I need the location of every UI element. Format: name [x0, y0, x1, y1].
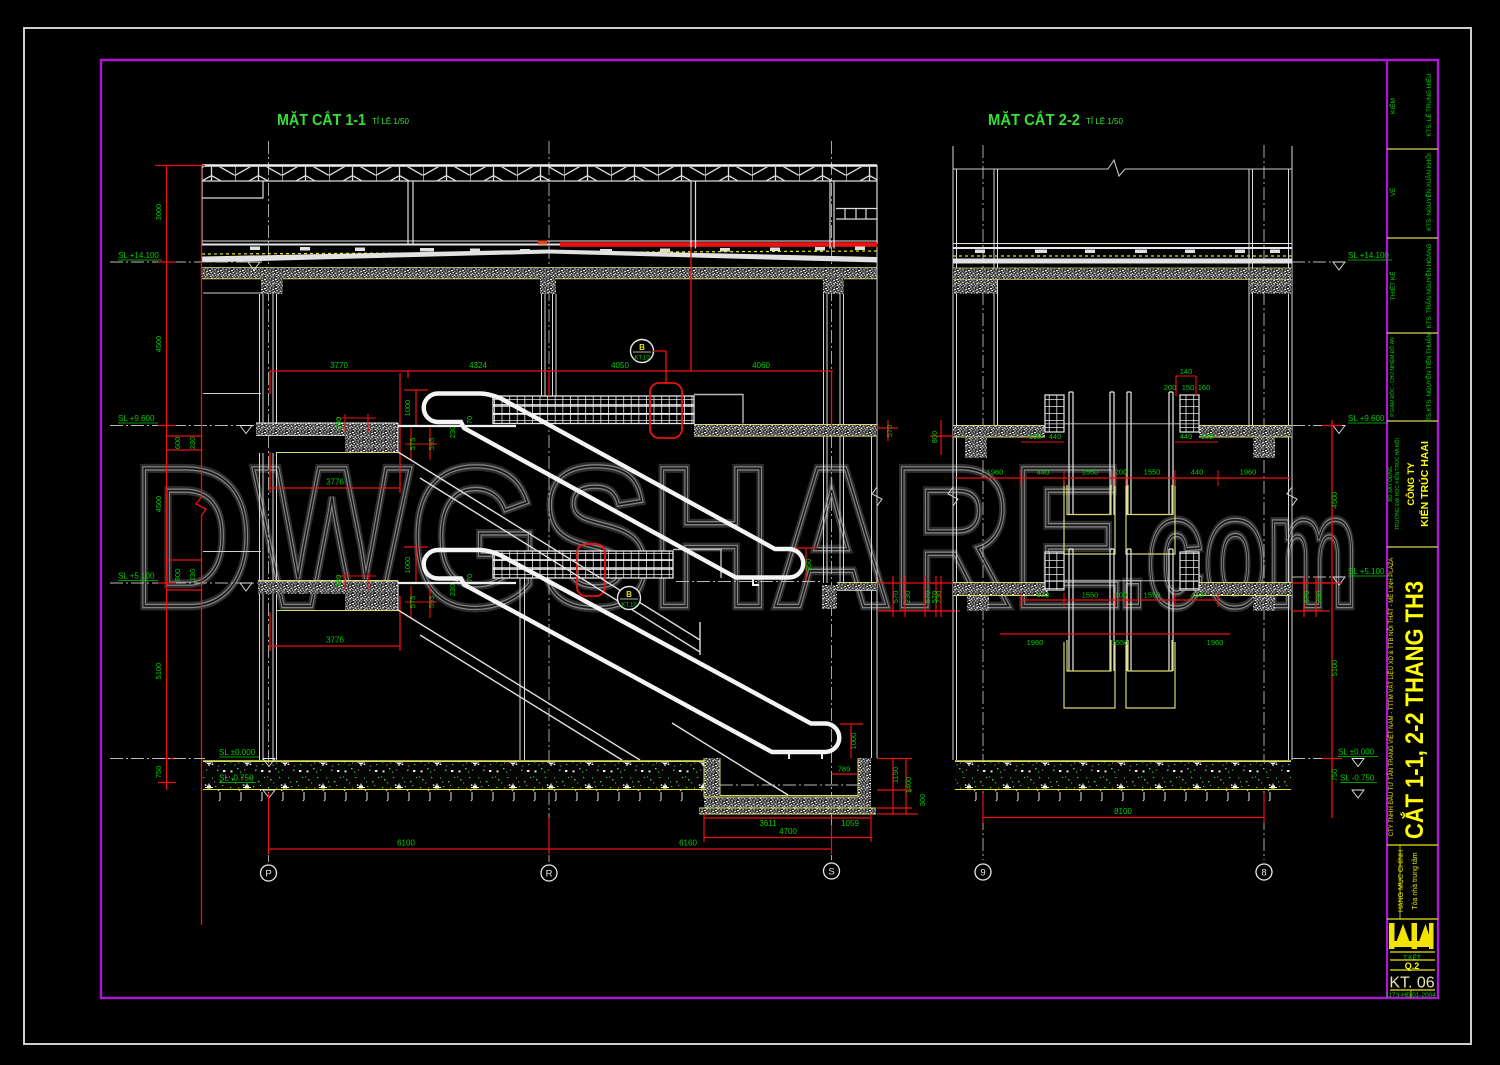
svg-text:3611: 3611 — [759, 819, 777, 828]
svg-text:.com: .com — [1118, 461, 1358, 640]
svg-text:4500: 4500 — [1330, 492, 1339, 509]
svg-text:1150: 1150 — [891, 767, 900, 783]
svg-text:1000: 1000 — [403, 557, 412, 574]
svg-text:440: 440 — [1049, 432, 1062, 441]
svg-text:5100: 5100 — [1330, 660, 1339, 677]
svg-text:1400: 1400 — [904, 777, 913, 794]
svg-text:230: 230 — [448, 426, 457, 439]
svg-text:570: 570 — [1302, 591, 1311, 604]
svg-text:1550: 1550 — [1082, 591, 1099, 600]
svg-text:6100: 6100 — [397, 839, 415, 848]
svg-text:230: 230 — [448, 584, 457, 597]
svg-text:CTY TNHH ĐẦU TƯ TÂN TRANG VIỆT: CTY TNHH ĐẦU TƯ TÂN TRANG VIỆT NAM - TTT… — [1387, 558, 1395, 837]
svg-text:440: 440 — [1037, 591, 1050, 600]
svg-text:TỈ LỆ 1/50: TỈ LỆ 1/50 — [372, 117, 409, 126]
svg-text:Tòa nhà trung tâm: Tòa nhà trung tâm — [1412, 852, 1419, 909]
svg-text:SL ±0.000: SL ±0.000 — [1338, 748, 1375, 757]
svg-text:SL -0.750: SL -0.750 — [1340, 774, 1375, 783]
svg-text:5100: 5100 — [154, 663, 163, 680]
svg-text:750: 750 — [154, 766, 163, 779]
svg-text:800: 800 — [930, 431, 939, 444]
svg-text:P: P — [265, 869, 271, 880]
svg-text:TỈ LỆ 1/50: TỈ LỆ 1/50 — [1086, 117, 1123, 126]
svg-text:440: 440 — [1191, 591, 1204, 600]
svg-text:SL +9.600: SL +9.600 — [1348, 414, 1385, 423]
svg-text:3000: 3000 — [154, 204, 163, 221]
svg-text:8100: 8100 — [1114, 807, 1132, 816]
svg-text:100: 100 — [1115, 591, 1128, 600]
svg-text:595: 595 — [427, 438, 436, 451]
svg-text:MẶT CẮT 1-1: MẶT CẮT 1-1 — [277, 110, 366, 129]
svg-text:230: 230 — [188, 437, 197, 450]
svg-text:4500: 4500 — [154, 336, 163, 353]
svg-text:1960: 1960 — [987, 468, 1004, 477]
svg-text:HẠNG MỤC CHÍNH: HẠNG MỤC CHÍNH — [1396, 850, 1405, 912]
svg-text:SL +5.100: SL +5.100 — [1348, 567, 1385, 576]
svg-text:SL +9.600: SL +9.600 — [118, 414, 155, 423]
svg-text:SL -0.750: SL -0.750 — [219, 774, 254, 783]
svg-text:230: 230 — [903, 591, 912, 604]
svg-text:440: 440 — [1191, 468, 1204, 477]
svg-text:1550: 1550 — [1144, 468, 1161, 477]
svg-text:B: B — [626, 590, 632, 599]
svg-text:P.GIÁM ĐỐC - CHỦ NHIỆM ĐỒ ÁN: P.GIÁM ĐỐC - CHỦ NHIỆM ĐỒ ÁN — [1388, 337, 1396, 417]
svg-text:CÔNG TY: CÔNG TY — [1405, 462, 1417, 506]
svg-text:300: 300 — [918, 794, 927, 807]
svg-text:SL +5.100: SL +5.100 — [118, 572, 155, 581]
svg-text:440: 440 — [1180, 432, 1193, 441]
svg-text:KTS. TRẦN NGUYỄN HOÀNG: KTS. TRẦN NGUYỄN HOÀNG — [1426, 243, 1433, 328]
svg-text:4050: 4050 — [611, 361, 629, 370]
svg-text:9: 9 — [980, 868, 985, 879]
svg-text:575: 575 — [408, 596, 417, 609]
svg-text:S: S — [828, 867, 834, 878]
svg-text:150: 150 — [1182, 383, 1195, 392]
svg-text:CẮT 1-1, 2-2 THANG TH3: CẮT 1-1, 2-2 THANG TH3 — [1399, 581, 1429, 839]
svg-text:1059: 1059 — [841, 819, 859, 828]
svg-text:750: 750 — [1330, 769, 1339, 782]
svg-text:230: 230 — [334, 417, 343, 430]
svg-text:4500: 4500 — [154, 496, 163, 513]
svg-text:1000: 1000 — [403, 400, 412, 417]
svg-text:MẶT CẮT 2-2: MẶT CẮT 2-2 — [988, 110, 1080, 129]
svg-text:800: 800 — [173, 569, 182, 582]
svg-text:4324: 4324 — [469, 361, 487, 370]
svg-text:8: 8 — [1261, 868, 1266, 879]
svg-text:570: 570 — [930, 591, 939, 604]
svg-text:DWGSHARE: DWGSHARE — [133, 426, 1123, 649]
svg-text:100: 100 — [1029, 432, 1042, 441]
svg-text:4060: 4060 — [752, 361, 770, 370]
svg-text:1960: 1960 — [1027, 638, 1044, 647]
svg-text:3776: 3776 — [326, 478, 344, 487]
svg-text:SL ±0.000: SL ±0.000 — [219, 748, 256, 757]
svg-text:BỘ XÂY DỰNG: BỘ XÂY DỰNG — [1387, 466, 1394, 501]
svg-text:1960: 1960 — [1207, 638, 1224, 647]
svg-text:KIỂM: KIỂM — [1388, 98, 1397, 114]
svg-text:230: 230 — [334, 575, 343, 588]
svg-text:1000: 1000 — [849, 733, 858, 750]
svg-text:600: 600 — [173, 437, 182, 450]
svg-text:3776: 3776 — [326, 636, 344, 645]
svg-text:595: 595 — [427, 596, 436, 609]
svg-text:950: 950 — [804, 559, 813, 572]
svg-text:KTS. LÊ TRUNG HIẾU: KTS. LÊ TRUNG HIẾU — [1425, 73, 1433, 136]
svg-text:01-2004: 01-2004 — [1412, 992, 1436, 999]
svg-text:440: 440 — [1037, 468, 1050, 477]
svg-text:6160: 6160 — [679, 839, 697, 848]
svg-text:KT. 06: KT. 06 — [1389, 975, 1434, 992]
svg-text:230: 230 — [1314, 591, 1323, 604]
svg-text:1960: 1960 — [1240, 468, 1257, 477]
svg-text:B: B — [639, 343, 645, 352]
svg-text:KT.10: KT.10 — [621, 603, 637, 609]
svg-text:160: 160 — [1198, 383, 1211, 392]
svg-text:KT.10: KT.10 — [634, 356, 650, 362]
svg-text:VẼ: VẼ — [1388, 187, 1397, 196]
svg-text:4700: 4700 — [779, 827, 797, 836]
svg-text:100: 100 — [1201, 432, 1214, 441]
svg-text:KIẾN TRÚC HAAI: KIẾN TRÚC HAAI — [1418, 441, 1431, 527]
svg-text:3770: 3770 — [330, 361, 348, 370]
svg-text:200: 200 — [1115, 468, 1128, 477]
svg-text:1550: 1550 — [1082, 468, 1099, 477]
svg-text:KTS. NGUYỄN XUÂN KHỐI: KTS. NGUYỄN XUÂN KHỐI — [1426, 153, 1433, 231]
svg-text:1550: 1550 — [1112, 638, 1129, 647]
svg-text:TRƯỜNG ĐẠI HỌC KIẾN TRÚC HÀ NỘ: TRƯỜNG ĐẠI HỌC KIẾN TRÚC HÀ NỘI — [1394, 438, 1401, 530]
svg-text:570: 570 — [885, 425, 894, 438]
svg-text:70: 70 — [465, 574, 474, 582]
svg-text:200: 200 — [1164, 383, 1177, 392]
svg-text:SL +14.100: SL +14.100 — [118, 251, 159, 260]
svg-text:R: R — [546, 869, 553, 880]
svg-text:140: 140 — [1180, 367, 1193, 376]
svg-text:789: 789 — [838, 765, 851, 774]
svg-text:70: 70 — [465, 416, 474, 424]
svg-text:570: 570 — [891, 591, 900, 604]
svg-text:575: 575 — [408, 438, 417, 451]
svg-text:230: 230 — [188, 569, 197, 582]
svg-text:1173-HĐ: 1173-HĐ — [1385, 992, 1411, 999]
svg-text:Q.2: Q.2 — [1405, 961, 1420, 971]
svg-text:1550: 1550 — [1144, 591, 1161, 600]
svg-text:TS.KTS. NGUYỄN TIẾN THUẬN: TS.KTS. NGUYỄN TIẾN THUẬN — [1426, 333, 1433, 420]
svg-text:SL +14.100: SL +14.100 — [1348, 251, 1389, 260]
